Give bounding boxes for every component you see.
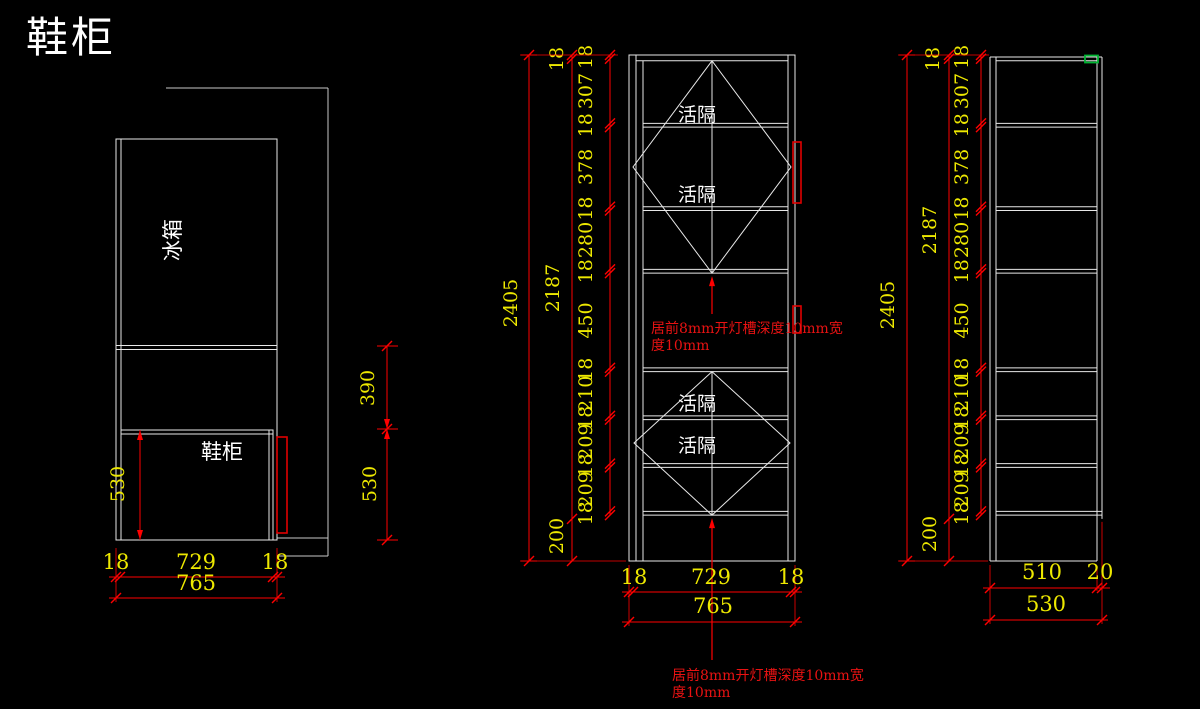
shelf-label: 活隔 xyxy=(678,435,716,457)
dim-label: 729 xyxy=(691,565,731,589)
dim-arrow xyxy=(709,518,715,528)
annotation: 居前8mm开灯槽深度10mm宽 xyxy=(672,667,864,684)
dim-label: 20 xyxy=(1087,560,1114,584)
chain-dim-label: 18 xyxy=(575,113,597,137)
dim-label: 18 xyxy=(262,550,289,574)
dim-label: 765 xyxy=(693,594,733,618)
shoe-label: 鞋柜 xyxy=(201,440,243,464)
annotation: 居前8mm开灯槽深度10mm宽 xyxy=(651,320,843,337)
chain-dim-label: 378 xyxy=(951,149,973,185)
dim-label: 200 xyxy=(919,516,941,552)
dim-label: 530 xyxy=(107,466,129,502)
door-handle xyxy=(277,437,287,533)
chain-dim-label: 18 xyxy=(575,196,597,220)
cad-canvas: 冰箱鞋柜5303905301872918765活隔活隔活隔活隔183071837… xyxy=(0,0,1200,709)
dim-arrow xyxy=(137,530,143,540)
dim-label: 18 xyxy=(546,47,568,71)
drawing-title: 鞋柜 xyxy=(26,4,116,65)
dim-label: 2187 xyxy=(542,264,564,312)
chain-dim-label: 450 xyxy=(575,302,597,338)
chain-dim-label: 18 xyxy=(951,45,973,69)
chain-dim-label: 307 xyxy=(575,73,597,109)
dim-arrow xyxy=(137,430,143,440)
dim-label: 18 xyxy=(922,47,944,71)
shelf-label: 活隔 xyxy=(678,393,716,415)
dim-label: 18 xyxy=(621,565,648,589)
annotation: 度10mm xyxy=(651,338,709,354)
shoe-box xyxy=(121,430,273,540)
dim-label: 510 xyxy=(1022,560,1062,584)
shelf-label: 活隔 xyxy=(678,184,716,206)
dim-label: 390 xyxy=(357,370,379,406)
chain-dim-label: 307 xyxy=(951,73,973,109)
dim-label: 530 xyxy=(1026,592,1066,616)
chain-dim-label: 280 xyxy=(951,222,973,258)
chain-dim-label: 18 xyxy=(951,196,973,220)
chain-dim-label: 18 xyxy=(575,501,597,525)
dim-label: 530 xyxy=(359,466,381,502)
dim-label: 200 xyxy=(546,518,568,554)
chain-dim-label: 18 xyxy=(951,501,973,525)
shelf-label: 活隔 xyxy=(678,104,716,126)
chain-dim-label: 280 xyxy=(575,222,597,258)
dim-label: 18 xyxy=(103,550,130,574)
dim-label: 2405 xyxy=(500,279,522,327)
fridge-label: 冰箱 xyxy=(161,219,185,261)
cad-drawing: 冰箱鞋柜5303905301872918765活隔活隔活隔活隔183071837… xyxy=(0,0,1200,709)
annotation: 度10mm xyxy=(672,685,730,701)
dim-label: 18 xyxy=(778,565,805,589)
dim-arrow xyxy=(709,276,715,286)
dim-label: 765 xyxy=(176,571,216,595)
chain-dim-label: 18 xyxy=(575,45,597,69)
dim-label: 2405 xyxy=(877,281,899,329)
chain-dim-label: 18 xyxy=(951,113,973,137)
dim-label: 2187 xyxy=(919,206,941,254)
chain-dim-label: 18 xyxy=(951,259,973,283)
chain-dim-label: 450 xyxy=(951,302,973,338)
door-handle xyxy=(793,142,801,203)
chain-dim-label: 18 xyxy=(575,259,597,283)
chain-dim-label: 378 xyxy=(575,149,597,185)
